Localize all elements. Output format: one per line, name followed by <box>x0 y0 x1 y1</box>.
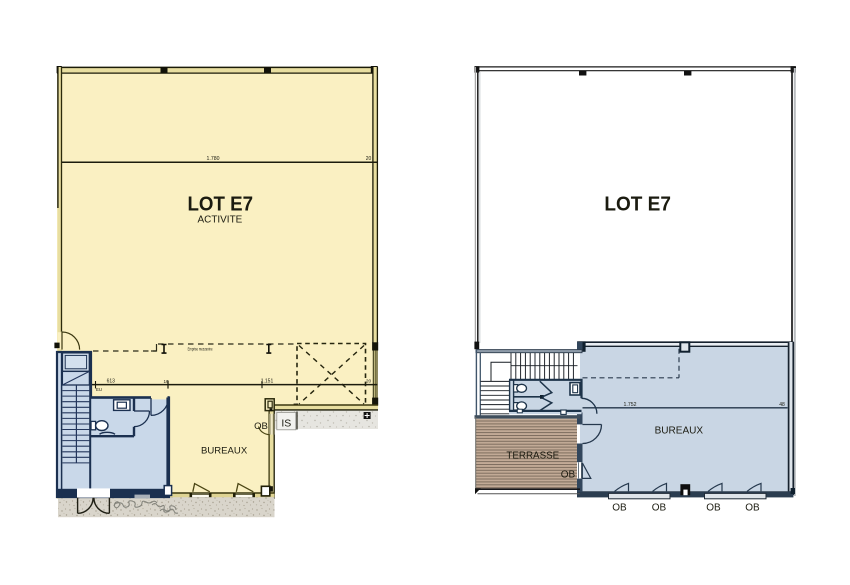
svg-text:OB: OB <box>706 503 721 514</box>
svg-text:EU: EU <box>96 387 102 392</box>
svg-text:OB: OB <box>254 421 268 432</box>
svg-text:1.780: 1.780 <box>207 156 220 162</box>
svg-text:IS: IS <box>281 417 291 429</box>
svg-text:LOT E7: LOT E7 <box>188 193 254 215</box>
svg-text:OB: OB <box>745 503 760 514</box>
svg-text:OB: OB <box>612 503 627 514</box>
svg-text:48: 48 <box>779 402 785 408</box>
svg-text:Emprise mezzanine: Emprise mezzanine <box>188 346 213 352</box>
svg-text:1.151: 1.151 <box>261 378 274 384</box>
svg-text:OB: OB <box>561 470 576 481</box>
svg-text:LOT E7: LOT E7 <box>604 193 671 215</box>
svg-text:613: 613 <box>107 379 116 385</box>
svg-text:16: 16 <box>163 379 169 384</box>
svg-text:BUREAUX: BUREAUX <box>201 445 248 456</box>
svg-text:TERRASSE: TERRASSE <box>506 450 559 461</box>
svg-text:BUREAUX: BUREAUX <box>655 426 704 437</box>
svg-text:1.752: 1.752 <box>624 402 637 408</box>
svg-text:OB: OB <box>652 503 667 514</box>
svg-text:20: 20 <box>366 379 372 385</box>
svg-text:20: 20 <box>366 156 372 162</box>
svg-text:ACTIVITE: ACTIVITE <box>198 215 243 226</box>
